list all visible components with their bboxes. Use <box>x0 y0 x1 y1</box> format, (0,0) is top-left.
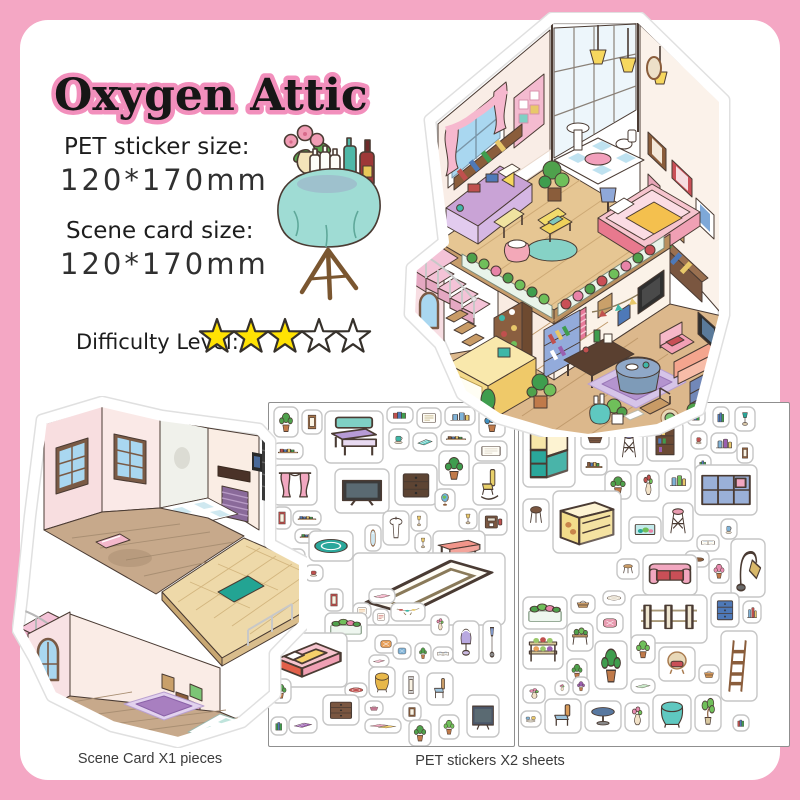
sticker-aquarium-icon <box>629 517 661 543</box>
sticker-tv-icon <box>467 695 499 737</box>
sticker-dresser-icon <box>395 465 437 505</box>
scene-card-size-label: Scene card size: <box>66 218 253 244</box>
sticker-basket-icon <box>365 701 383 715</box>
sticker-lamp-icon <box>415 533 431 553</box>
page-title: Oxygen Attic <box>44 60 374 130</box>
sticker-mat-icon <box>631 679 655 693</box>
sticker-ladder-icon <box>721 631 757 701</box>
sticker-vase-icon <box>625 703 649 731</box>
star-icon <box>234 319 268 352</box>
sticker-arclamp-icon <box>731 539 765 597</box>
sticker-openbook-icon <box>697 535 719 551</box>
sticker-plant-icon <box>573 677 589 695</box>
sticker-clothtable-icon <box>653 695 691 733</box>
sticker-sink-icon <box>383 511 409 545</box>
sticker-mat-icon <box>369 655 389 667</box>
sticker-note-icon <box>373 609 389 625</box>
star-icon <box>302 319 336 352</box>
caption-pet-stickers: PET stickers X2 sheets <box>370 753 610 769</box>
pet-sticker-size-label: PET sticker size: <box>64 134 250 160</box>
sticker-plant-icon <box>409 720 431 746</box>
sticker-frame-icon <box>737 443 753 463</box>
sticker-cup-icon <box>721 519 737 539</box>
sticker-bottles-icon <box>665 469 691 491</box>
sticker-cupset-icon <box>521 711 541 727</box>
star-icon <box>200 319 234 352</box>
sticker-basket-icon <box>571 595 595 613</box>
sticker-plant-icon <box>631 635 655 663</box>
sticker-bottles-icon <box>743 601 761 623</box>
sticker-plant-icon <box>439 451 469 485</box>
sticker-pillow-icon <box>393 643 411 659</box>
sticker-plant-icon <box>415 643 431 663</box>
sticker-ruground-icon <box>603 591 625 605</box>
sticker-basket-icon <box>699 665 719 683</box>
sticker-dresser-icon <box>711 593 739 627</box>
sticker-cubeshelf-icon <box>695 465 757 515</box>
scene-card-size-value: 120*170mm <box>60 247 269 281</box>
star-icon <box>336 319 370 352</box>
sticker-ruground-icon <box>309 531 353 561</box>
sticker-pillow-icon <box>597 613 623 633</box>
sticker-globe-icon <box>435 489 455 511</box>
difficulty-stars <box>198 314 373 358</box>
sticker-wicker-icon <box>659 647 695 681</box>
sticker-stool-icon <box>523 499 549 531</box>
sticker-vase-icon <box>555 681 569 695</box>
sticker-lamp-icon <box>735 407 755 431</box>
sticker-frame-icon <box>325 589 343 611</box>
sticker-lamp-icon <box>459 509 477 529</box>
sticker-lamp-icon <box>411 511 427 531</box>
sticker-mat-icon <box>369 589 395 603</box>
sticker-books-icon <box>733 715 749 731</box>
sticker-garland-icon <box>391 603 425 621</box>
sticker-sofa-icon <box>643 555 697 595</box>
sticker-rocker-icon <box>473 463 505 505</box>
sticker-plantbench-icon <box>567 623 593 651</box>
sticker-cup-icon <box>305 565 323 581</box>
attic-illustration <box>402 12 732 437</box>
sticker-clothtable-icon <box>369 667 395 697</box>
sticker-note-icon <box>475 441 507 461</box>
sticker-stool-icon <box>617 559 639 579</box>
sticker-floorlamp-icon <box>483 621 501 663</box>
sticker-flowerbox-icon <box>523 597 567 629</box>
star-icon <box>268 319 302 352</box>
table-illustration <box>264 124 394 302</box>
sticker-plant-icon <box>709 559 729 583</box>
sticker-sheet-2 <box>518 402 790 747</box>
pet-sticker-size-value: 120*170mm <box>60 163 269 197</box>
sticker-frame-icon <box>403 671 419 699</box>
sticker-openbook-icon <box>433 647 453 661</box>
sticker-vase-icon <box>431 615 449 635</box>
sticker-tv-icon <box>335 469 389 513</box>
sticker-mats-icon <box>365 719 401 733</box>
product-poster: Oxygen Attic PET sticker size: 120*170mm… <box>0 0 800 800</box>
sticker-frame-icon <box>403 703 421 721</box>
sticker-counter-icon <box>553 491 621 553</box>
sticker-roundtable-icon <box>585 701 621 731</box>
sticker-mirror-icon <box>365 525 381 551</box>
sticker-stool2-icon <box>663 503 693 541</box>
sticker-bonsai-icon <box>695 695 721 731</box>
scene-card-illustration <box>12 396 307 748</box>
caption-scene-card: Scene Card X1 pieces <box>30 751 270 767</box>
sticker-desk-icon <box>325 411 383 463</box>
sticker-plant-icon <box>439 715 459 739</box>
sticker-vase-icon <box>637 471 659 501</box>
title-text: Oxygen Attic <box>54 70 368 121</box>
sticker-chair-icon <box>545 699 581 733</box>
sticker-chair-icon <box>427 673 453 705</box>
sticker-plant-icon <box>595 641 627 689</box>
sticker-vase-icon <box>523 685 545 703</box>
sticker-shelfveg-icon <box>523 633 563 669</box>
sticker-shelfrow-icon <box>581 455 607 475</box>
sticker-domelamp-icon <box>453 621 479 663</box>
sticker-dresser-icon <box>323 695 359 725</box>
sticker-machine-icon <box>479 509 507 535</box>
